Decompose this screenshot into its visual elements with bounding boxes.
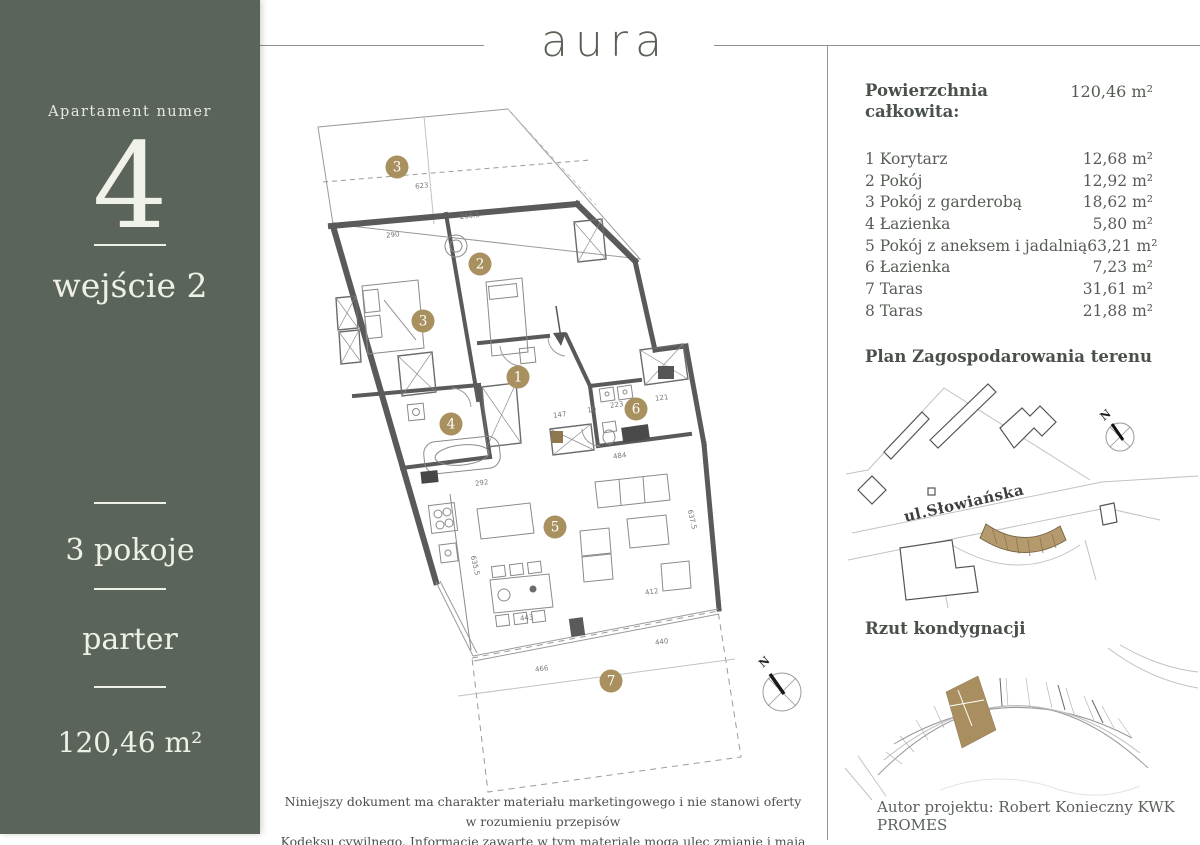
brand-logo: aura <box>525 16 685 67</box>
room-row: 7 Taras31,61 m² <box>865 280 1153 302</box>
closets <box>336 219 688 455</box>
rooms-count-label: 3 pokoje <box>0 533 260 568</box>
room-row: 4 Łazienka5,80 m² <box>865 215 1153 237</box>
dimension-label: 290 <box>386 230 400 239</box>
summary-title-line1: Powierzchnia <box>865 81 988 100</box>
site-plan-title: Plan Zagospodarowania terenu <box>865 347 1185 366</box>
dimension-label: 412 <box>645 587 659 597</box>
room-marker-circle <box>544 516 567 539</box>
sidebar-divider <box>94 502 166 504</box>
site-compass-label: N <box>1098 407 1114 423</box>
room-marker-circle <box>440 413 463 436</box>
dimension-label: 147 <box>553 410 567 420</box>
summary-title-line2: całkowita: <box>865 102 959 121</box>
dimension-label: 635.5 <box>469 555 481 576</box>
room-marker-circle <box>469 253 492 276</box>
highlighted-unit <box>946 676 996 748</box>
room-marker-number: 7 <box>607 674 616 690</box>
dimension-label: 223 <box>610 400 624 410</box>
exterior-walls <box>331 204 719 661</box>
terrace-bottom <box>458 611 741 792</box>
room-name: 7 Taras <box>865 280 923 302</box>
room-number-markers: 32314657 <box>386 156 648 693</box>
furniture <box>362 235 691 650</box>
room-marker-number: 1 <box>514 370 523 386</box>
interior-walls <box>354 214 690 468</box>
apartment-card-page: N ul.Słowiańska <box>0 0 1200 845</box>
room-marker-number: 5 <box>551 520 560 536</box>
dimension-labels: 623269.529014710223121484292443466412440… <box>386 181 698 674</box>
room-marker-number: 4 <box>447 417 456 433</box>
total-area-label: 120,46 m² <box>0 726 260 759</box>
closet-room3-a <box>336 296 358 330</box>
room-name: 4 Łazienka <box>865 215 950 237</box>
room-marker-circle <box>625 398 648 421</box>
wardrobe-room3 <box>482 383 521 447</box>
room-marker-number: 3 <box>419 314 428 330</box>
dimension-label: 623 <box>415 181 429 190</box>
room-marker-circle <box>600 670 623 693</box>
header-rule-right <box>714 45 1200 46</box>
street-label: ul.Słowiańska <box>902 481 1026 526</box>
dimension-label: 466 <box>535 664 550 674</box>
floor-label: parter <box>0 622 260 657</box>
floor-locator-map <box>845 645 1198 800</box>
room-row: 8 Taras21,88 m² <box>865 302 1153 324</box>
room-name: 6 Łazienka <box>865 258 950 280</box>
plan-compass-icon: N <box>756 654 801 711</box>
dimension-label: 484 <box>613 451 628 461</box>
room-marker-number: 3 <box>393 160 402 176</box>
room-marker-number: 2 <box>476 257 485 273</box>
room-marker-circle <box>412 310 435 333</box>
room-area-value: 7,23 m² <box>1093 258 1153 280</box>
room-marker-circle <box>507 366 530 389</box>
plan-compass-label: N <box>756 654 772 670</box>
doors <box>452 306 600 446</box>
dimension-label: 443 <box>520 613 534 623</box>
closet-room3-c <box>398 352 436 396</box>
highlighted-building <box>980 524 1066 553</box>
room-area-value: 5,80 m² <box>1093 215 1153 237</box>
room-area-value: 12,92 m² <box>1083 172 1153 194</box>
author-credit: Autor projektu: Robert Konieczny KWK PRO… <box>877 798 1177 834</box>
sidebar-divider <box>94 244 166 246</box>
dimension-label: 269.5 <box>459 211 480 221</box>
dimension-label: 440 <box>655 637 669 647</box>
room-area-value: 12,68 m² <box>1083 150 1153 172</box>
disclaimer-line2: Kodeksu cywilnego. Informacje zawarte w … <box>281 834 806 845</box>
bath6-shaft <box>640 344 688 385</box>
floor-locator-title: Rzut kondygnacji <box>865 619 1185 638</box>
room-row: 1 Korytarz12,68 m² <box>865 150 1153 172</box>
room-name: 5 Pokój z aneksem i jadalnią <box>865 237 1087 259</box>
room-marker-number: 6 <box>632 402 641 418</box>
dimension-label: 10 <box>587 405 597 414</box>
column-divider <box>827 46 828 840</box>
dimension-label: 637.5 <box>686 509 698 530</box>
terrace-top <box>318 109 640 259</box>
sidebar: Apartament numer 4 wejście 2 3 pokoje pa… <box>0 0 260 834</box>
apartment-number: 4 <box>0 122 260 252</box>
room-name: 3 Pokój z garderobą <box>865 193 1022 215</box>
header-rule-left <box>260 45 484 46</box>
site-compass-icon: N <box>1098 407 1134 451</box>
sidebar-divider <box>94 686 166 688</box>
room-row: 6 Łazienka7,23 m² <box>865 258 1153 280</box>
closet-room3-b <box>339 330 361 364</box>
sidebar-divider <box>94 588 166 590</box>
room-name: 1 Korytarz <box>865 150 948 172</box>
disclaimer: Niniejszy dokument ma charakter materiał… <box>280 792 806 845</box>
room-row: 2 Pokój12,92 m² <box>865 172 1153 194</box>
room-area-value: 18,62 m² <box>1083 193 1153 215</box>
room-area-list: 1 Korytarz12,68 m²2 Pokój12,92 m²3 Pokój… <box>865 150 1153 324</box>
disclaimer-line1: Niniejszy dokument ma charakter materiał… <box>285 794 802 829</box>
room-row: 3 Pokój z garderobą18,62 m² <box>865 193 1153 215</box>
hall-shaft <box>550 424 594 455</box>
room-area-value: 21,88 m² <box>1083 302 1153 324</box>
site-plan-map: ul.Słowiańska N <box>846 384 1198 608</box>
dimension-label: 292 <box>475 478 489 488</box>
room-marker-circle <box>386 156 409 179</box>
summary-total-value: 120,46 m² <box>1000 82 1153 101</box>
closet-room2 <box>574 219 606 262</box>
room-row: 5 Pokój z aneksem i jadalnią63,21 m² <box>865 237 1153 259</box>
room-name: 8 Taras <box>865 302 923 324</box>
entrance-label: wejście 2 <box>0 266 260 305</box>
dimension-label: 121 <box>655 393 669 403</box>
room-area-value: 31,61 m² <box>1083 280 1153 302</box>
entrance-arrow-icon <box>553 306 566 346</box>
room-name: 2 Pokój <box>865 172 922 194</box>
room-area-value: 63,21 m² <box>1087 237 1157 259</box>
